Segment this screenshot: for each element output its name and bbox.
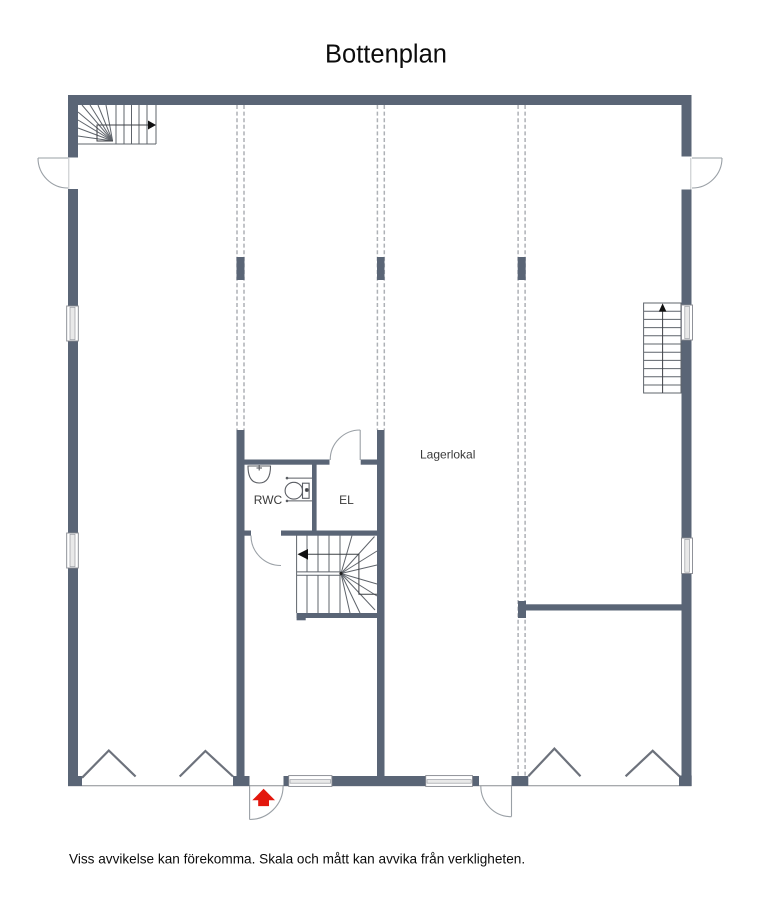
svg-text:Viss avvikelse kan förekomma.: Viss avvikelse kan förekomma. Skala och …: [69, 852, 525, 867]
svg-text:RWC: RWC: [254, 493, 283, 507]
svg-text:Lagerlokal: Lagerlokal: [420, 448, 475, 462]
svg-text:EL: EL: [339, 493, 354, 507]
svg-text:Bottenplan: Bottenplan: [325, 41, 447, 69]
